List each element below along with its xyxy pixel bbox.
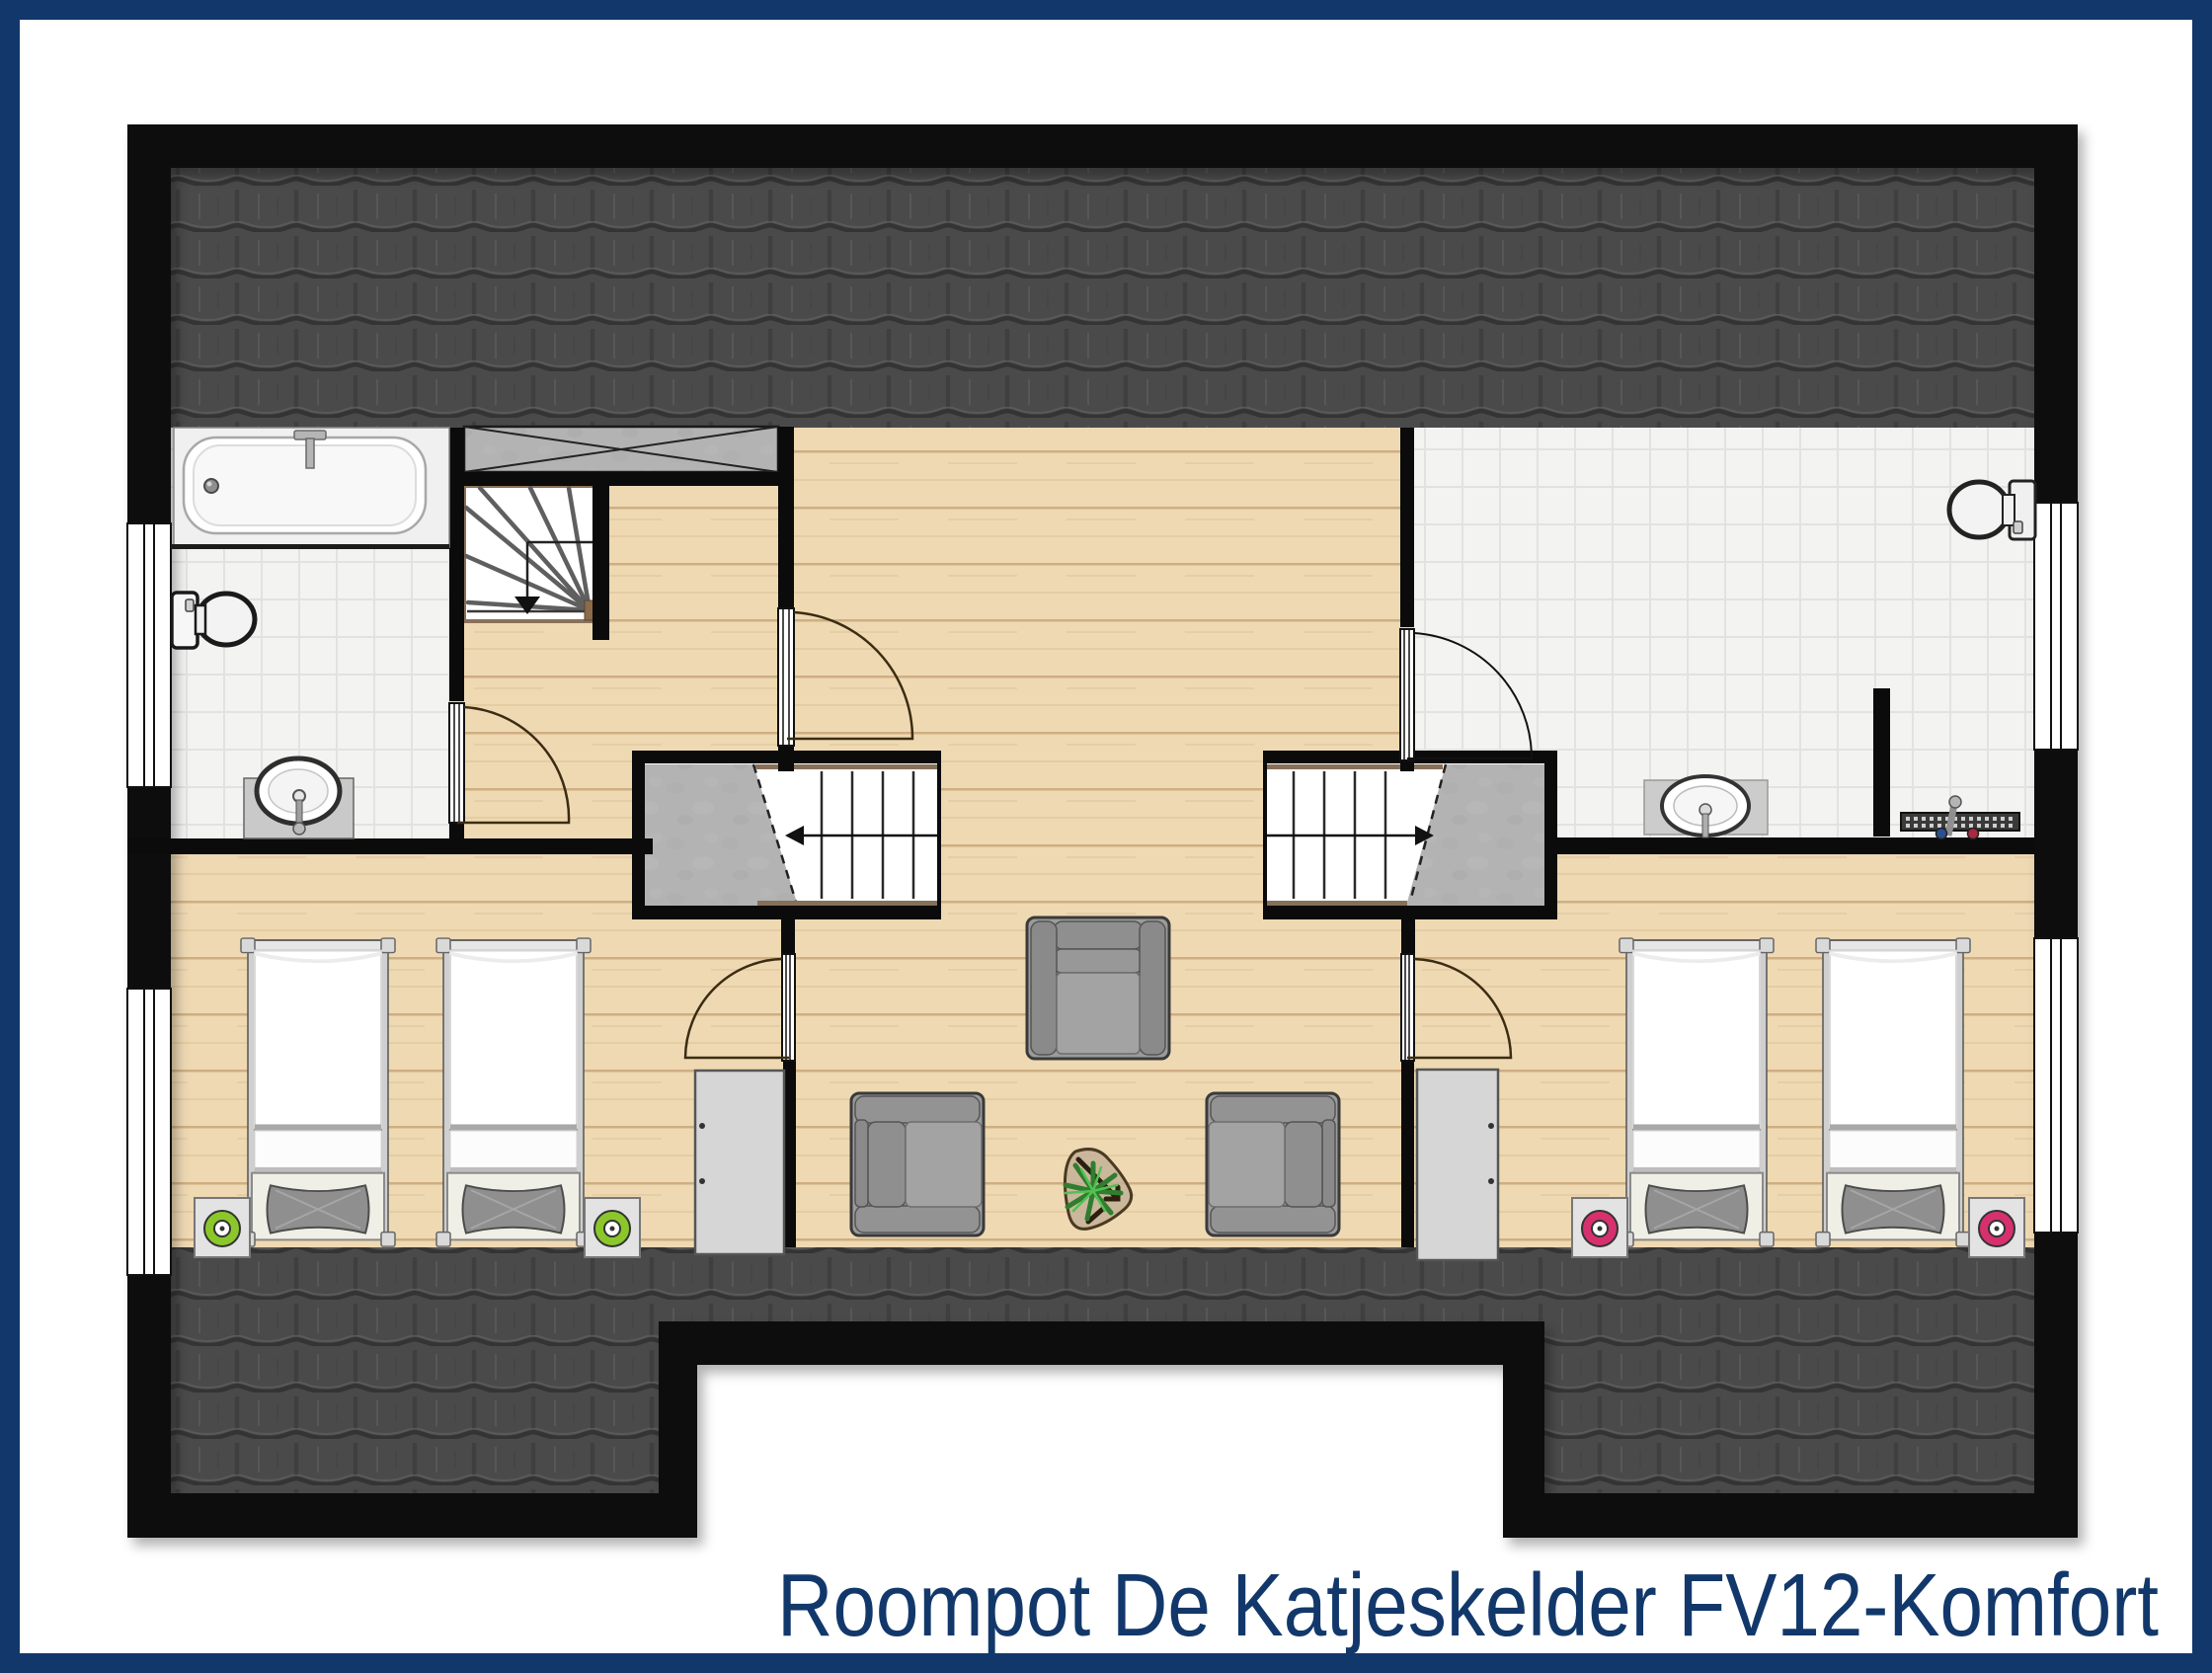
svg-text:Roompot De Katjeskelder FV12-K: Roompot De Katjeskelder FV12-Komfort	[777, 1556, 2159, 1655]
